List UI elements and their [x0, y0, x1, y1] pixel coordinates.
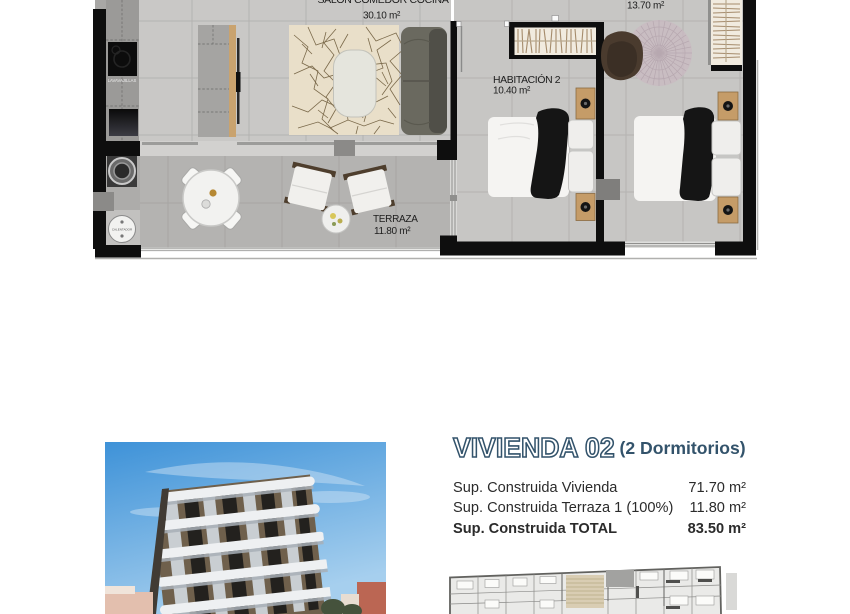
svg-text:LAVAVAJILLAS: LAVAVAJILLAS	[108, 78, 137, 83]
svg-text:30.10 m²: 30.10 m²	[363, 11, 401, 22]
svg-text:SALÓN COMEDOR COCINA: SALÓN COMEDOR COCINA	[317, 0, 448, 6]
svg-text:13.70 m²: 13.70 m²	[627, 1, 665, 12]
svg-text:CALENTADOR: CALENTADOR	[112, 228, 133, 232]
svg-text:10.40 m²: 10.40 m²	[493, 86, 531, 97]
svg-text:TERRAZA: TERRAZA	[373, 214, 418, 225]
svg-text:11.80 m²: 11.80 m²	[374, 226, 411, 237]
svg-text:HABITACIÓN 2: HABITACIÓN 2	[493, 73, 561, 86]
